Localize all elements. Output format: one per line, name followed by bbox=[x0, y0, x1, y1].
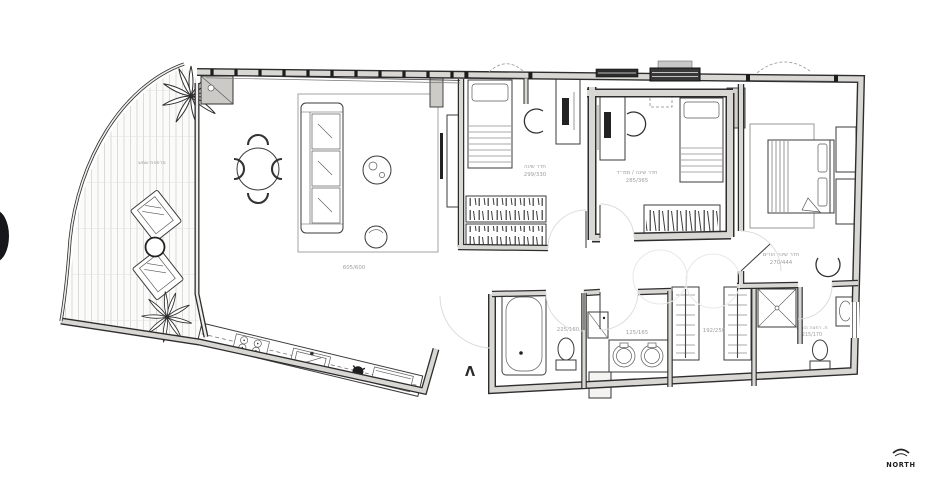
bedroom-2-mamad: חדר שינה / ממ״ד 285/365 bbox=[598, 93, 723, 233]
master-label: חדר שינה הורים bbox=[763, 252, 800, 258]
nightstand bbox=[836, 127, 856, 172]
living-room: 605/600 bbox=[201, 76, 459, 271]
double-bed bbox=[768, 140, 834, 213]
bedroom2-dims: 285/365 bbox=[626, 178, 648, 184]
bedroom1-label: חדר שינה bbox=[524, 164, 546, 170]
north-compass: NORTH bbox=[886, 450, 915, 470]
desk-chair bbox=[524, 109, 543, 133]
dining-chair bbox=[248, 135, 268, 145]
terrace-side-table bbox=[146, 238, 165, 257]
pouf bbox=[365, 226, 387, 248]
walk-in-closet: 192/250 bbox=[672, 287, 751, 360]
north-arrow-icon bbox=[893, 450, 909, 454]
master-dims: 270/444 bbox=[770, 260, 793, 266]
entry-marker: Λ bbox=[465, 365, 475, 380]
living-room-label: 605/600 bbox=[343, 265, 366, 271]
coffee-table bbox=[363, 156, 391, 184]
dining-chair bbox=[248, 193, 268, 203]
wardrobe bbox=[672, 287, 699, 360]
window-swing-dashed bbox=[489, 64, 523, 72]
terrace-label: מרפסת שמש bbox=[138, 160, 165, 166]
armchair bbox=[816, 258, 840, 277]
sofa bbox=[301, 103, 343, 233]
edge-marker bbox=[0, 210, 9, 262]
laundry-dims: 125/165 bbox=[626, 330, 648, 336]
window-swing-dashed bbox=[757, 62, 810, 73]
dining-table bbox=[234, 135, 282, 203]
single-bed bbox=[680, 98, 723, 182]
master-bedroom: חדר שינה הורים 270/444 bbox=[727, 88, 856, 277]
bathtub bbox=[502, 293, 546, 375]
master-bathroom: ח. רחצה הורים 215/170 bbox=[758, 289, 855, 370]
sink-cabinet bbox=[588, 312, 608, 338]
ac-unit bbox=[650, 97, 672, 107]
master-bath-dims: 215/170 bbox=[802, 332, 822, 338]
tv bbox=[440, 133, 443, 179]
desk bbox=[598, 93, 625, 160]
bedroom1-dims: 299/330 bbox=[524, 172, 547, 178]
closet bbox=[644, 205, 720, 233]
floor-plan-canvas: 605/600 bbox=[0, 0, 932, 477]
tv-sideboard bbox=[447, 115, 459, 207]
closet-dims: 192/250 bbox=[703, 328, 726, 334]
nightstand bbox=[836, 179, 856, 224]
mamad-window bbox=[650, 68, 700, 81]
bookshelf-closet bbox=[466, 196, 546, 249]
bedroom2-label: חדר שינה / ממ״ד bbox=[617, 170, 658, 176]
desk-chair bbox=[627, 112, 646, 136]
wardrobe bbox=[724, 287, 751, 360]
bathroom: 225/160 bbox=[502, 293, 580, 375]
master-bath-window bbox=[850, 302, 859, 338]
terrace-deck bbox=[63, 67, 200, 340]
toilet bbox=[556, 338, 576, 370]
desk bbox=[556, 78, 580, 144]
shower bbox=[758, 289, 796, 327]
north-label: NORTH bbox=[886, 461, 915, 469]
toilet bbox=[810, 340, 830, 370]
single-bed bbox=[468, 80, 512, 168]
